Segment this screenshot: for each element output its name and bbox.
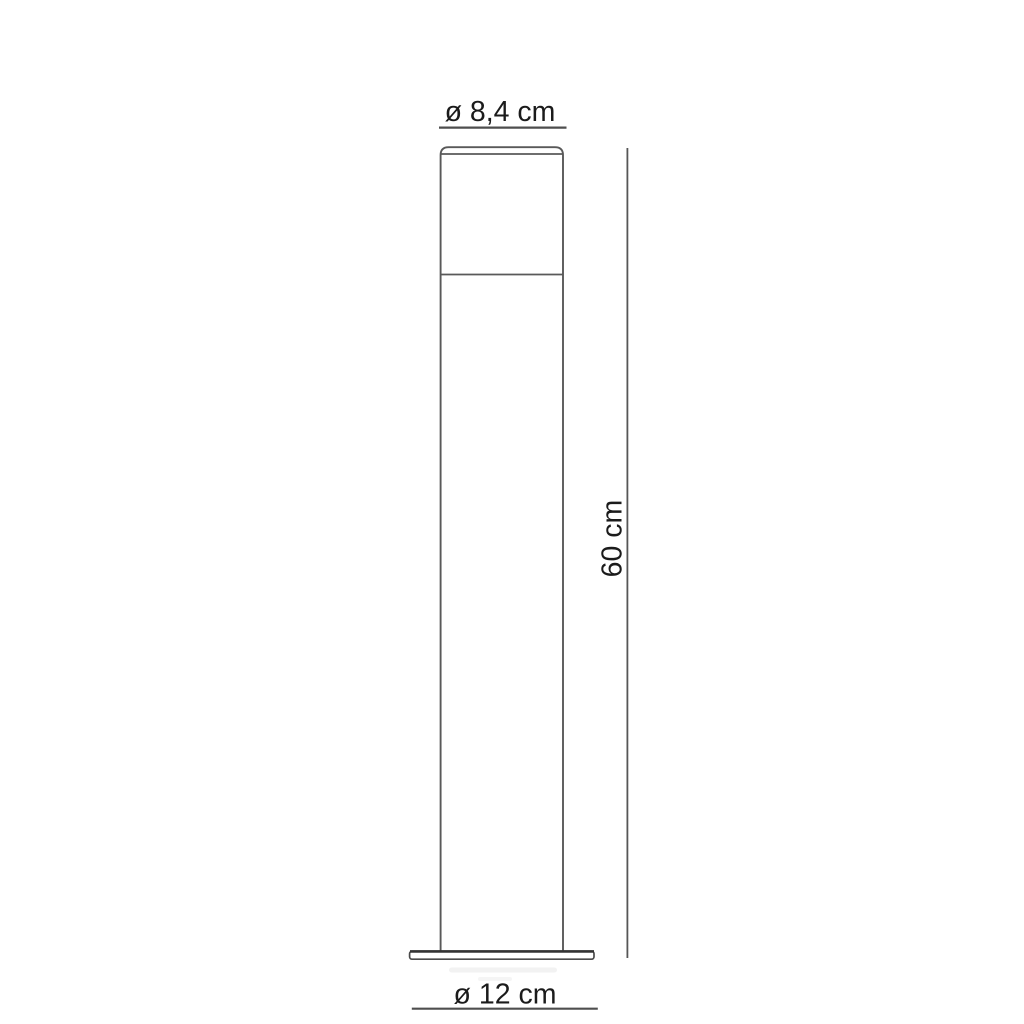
svg-text:ø 12 cm: ø 12 cm (454, 979, 557, 1011)
svg-text:60 cm: 60 cm (597, 500, 629, 578)
svg-text:ø 8,4 cm: ø 8,4 cm (445, 96, 556, 128)
